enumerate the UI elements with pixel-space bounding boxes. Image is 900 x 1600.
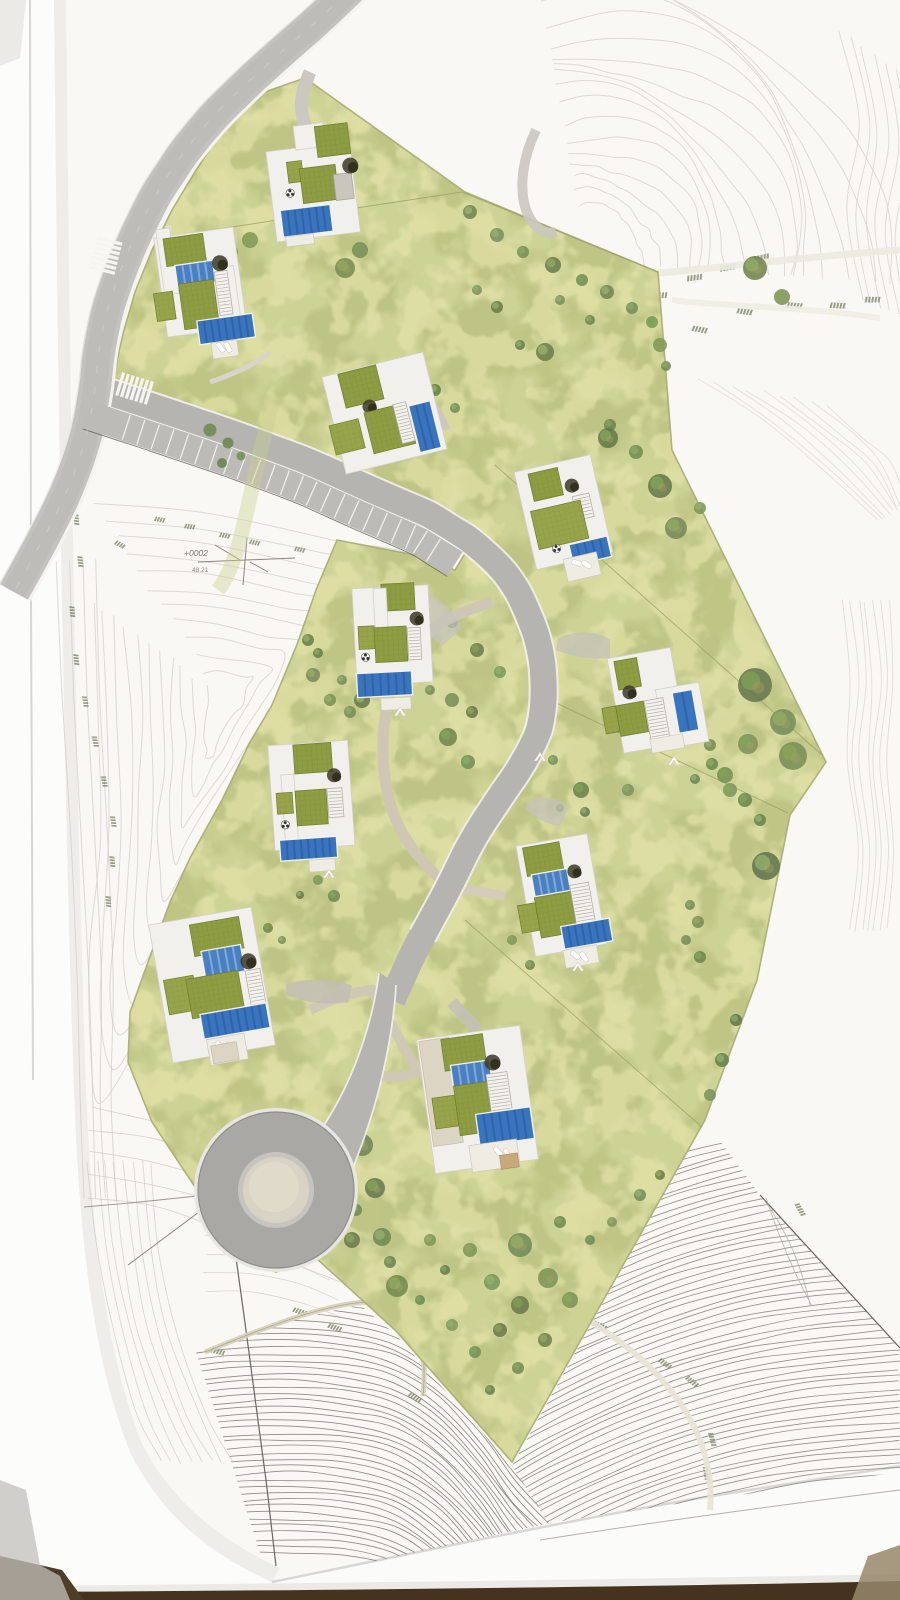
svg-text:48.21: 48.21 [192, 567, 209, 574]
svg-text:+0002: +0002 [184, 548, 208, 558]
